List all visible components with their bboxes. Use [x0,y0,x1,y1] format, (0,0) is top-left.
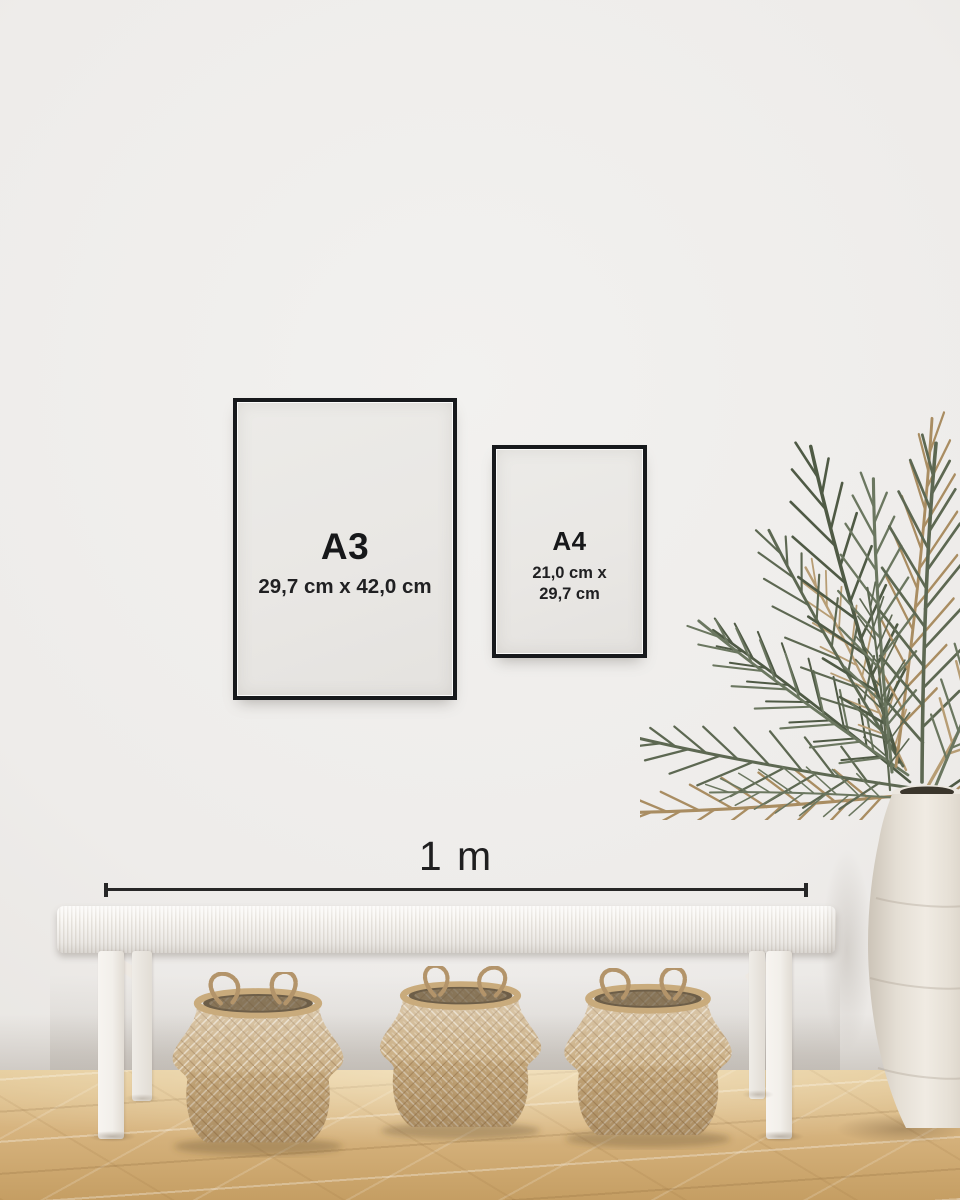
a4-dimensions-label: 21,0 cm x 29,7 cm [532,563,606,606]
a4-dimensions-line2: 29,7 cm [532,584,606,605]
leg-shadow [124,1094,160,1103]
bench-back-right-leg [749,951,765,1099]
bench-front-right-leg [766,951,792,1139]
a3-size-label: A3 [321,526,369,568]
a3-dimensions-label: 29,7 cm x 42,0 cm [258,575,431,599]
basket-center [368,966,553,1142]
a4-frame: A4 21,0 cm x 29,7 cm [492,445,647,658]
room-scene: A3 29,7 cm x 42,0 cm A4 21,0 cm x 29,7 c… [0,0,960,1200]
leg-shadow [756,1131,804,1142]
bench-back-left-leg [132,951,152,1101]
scale-label: 1 m [104,833,808,880]
scale-left-tick [104,883,108,897]
palm-plant [640,320,960,820]
bench-front-left-leg [98,951,124,1139]
leg-shadow [742,1090,774,1099]
leg-shadow [88,1131,136,1142]
a3-frame: A3 29,7 cm x 42,0 cm [233,398,457,700]
ceramic-vase [846,778,960,1162]
a4-size-label: A4 [552,526,586,557]
scale-line [104,888,808,891]
one-meter-scale: 1 m [104,883,808,897]
scale-right-tick [804,883,808,897]
basket-right [552,968,744,1150]
bench-seat [57,906,836,953]
basket-left [160,972,356,1158]
a4-dimensions-line1: 21,0 cm x [532,563,606,584]
